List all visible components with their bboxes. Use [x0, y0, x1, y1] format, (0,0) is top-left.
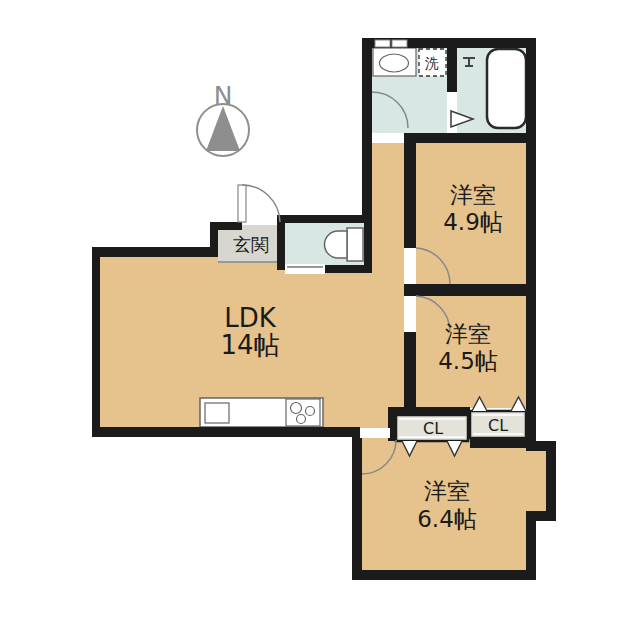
bedroom-4-5-label: 洋室 — [445, 321, 491, 347]
toilet-sliding-door-icon — [285, 264, 325, 274]
compass-needle-icon — [206, 106, 240, 151]
stove-icon — [286, 399, 320, 426]
toilet-icon — [325, 228, 364, 261]
floor-plan-page: LDK 14帖 洋室 4.9帖 洋室 4.5帖 洋室 6.4帖 玄関 洗 CL … — [0, 0, 639, 636]
closet-left-label: CL — [423, 419, 443, 438]
hallway-floor — [372, 143, 404, 256]
vanity-basin-icon — [373, 48, 416, 76]
bedroom-4-9-size-label: 4.9帖 — [443, 209, 503, 235]
bedroom-6-4-label: 洋室 — [424, 478, 470, 504]
floors — [100, 48, 546, 570]
washer-label: 洗 — [425, 55, 439, 71]
bedroom-4-5-size-label: 4.5帖 — [438, 348, 498, 374]
entrance-label: 玄関 — [233, 234, 269, 255]
bedroom-4-9-label: 洋室 — [450, 182, 496, 208]
closet-right-label: CL — [488, 416, 508, 435]
ldk-label: LDK — [224, 303, 277, 333]
kitchen-counter-icon — [200, 398, 323, 427]
ldk-size-label: 14帖 — [220, 330, 279, 360]
floor-plan-svg: LDK 14帖 洋室 4.9帖 洋室 4.5帖 洋室 6.4帖 玄関 洗 CL … — [0, 0, 639, 636]
north-arrow: N — [197, 81, 249, 157]
bathtub-icon — [487, 49, 526, 128]
bedroom-6-4-size-label: 6.4帖 — [417, 506, 477, 532]
kitchen-sink-icon — [205, 403, 229, 423]
entrance-door-icon — [238, 185, 280, 222]
